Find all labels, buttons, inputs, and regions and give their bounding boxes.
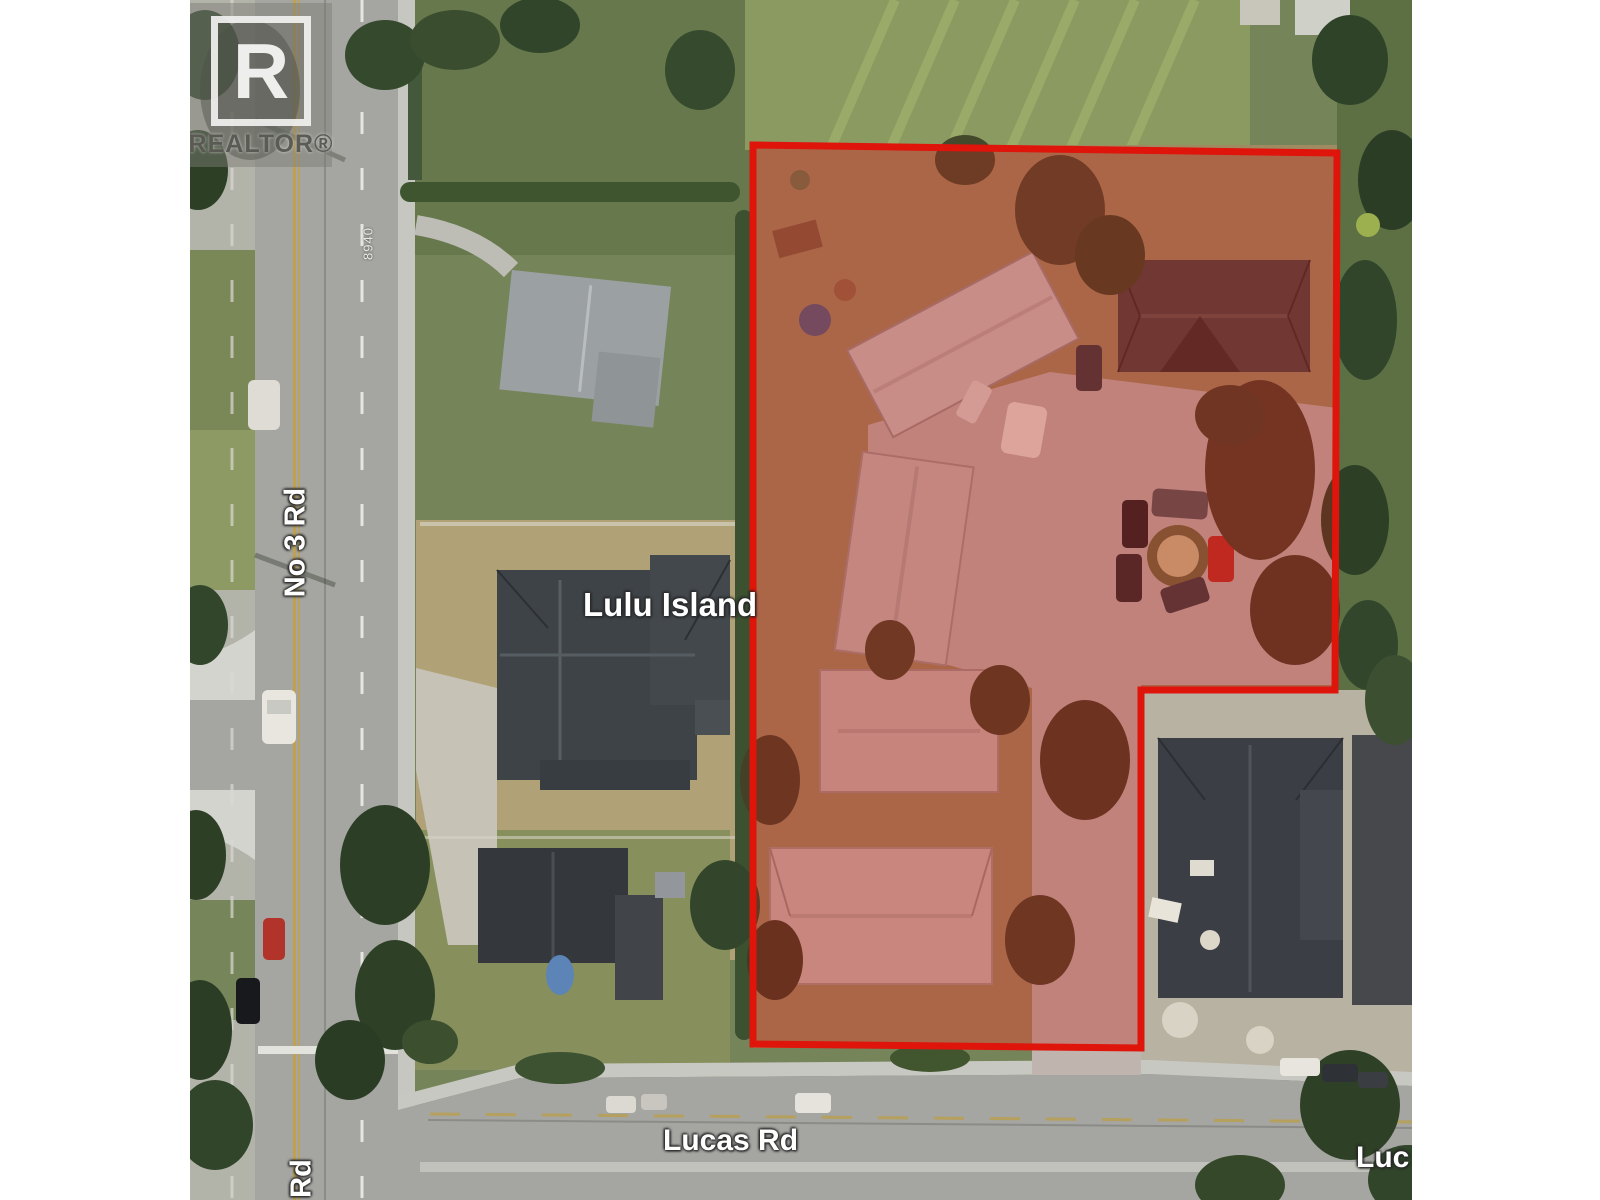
realtor-r-glyph: R (233, 32, 289, 110)
road-label-lucas-partial: Luc (1356, 1141, 1409, 1175)
house-number-label: 8940 (361, 209, 376, 279)
realtor-watermark: R REALTOR® (190, 3, 332, 167)
aerial-scene (190, 0, 1412, 1200)
realtor-brand-text: REALTOR® (190, 130, 333, 159)
realtor-logo-icon: R (211, 16, 311, 126)
district-label-lulu-island: Lulu Island (583, 586, 757, 624)
satellite-map: No 3 Rd Rd Lulu Island Lucas Rd Luc 8940… (190, 0, 1412, 1200)
listing-aerial-photo: No 3 Rd Rd Lulu Island Lucas Rd Luc 8940… (0, 0, 1600, 1200)
road-label-no3rd: No 3 Rd (280, 468, 313, 618)
road-label-rd-partial: Rd (286, 1144, 319, 1200)
road-label-lucas-rd: Lucas Rd (663, 1124, 798, 1158)
pool (546, 955, 574, 995)
